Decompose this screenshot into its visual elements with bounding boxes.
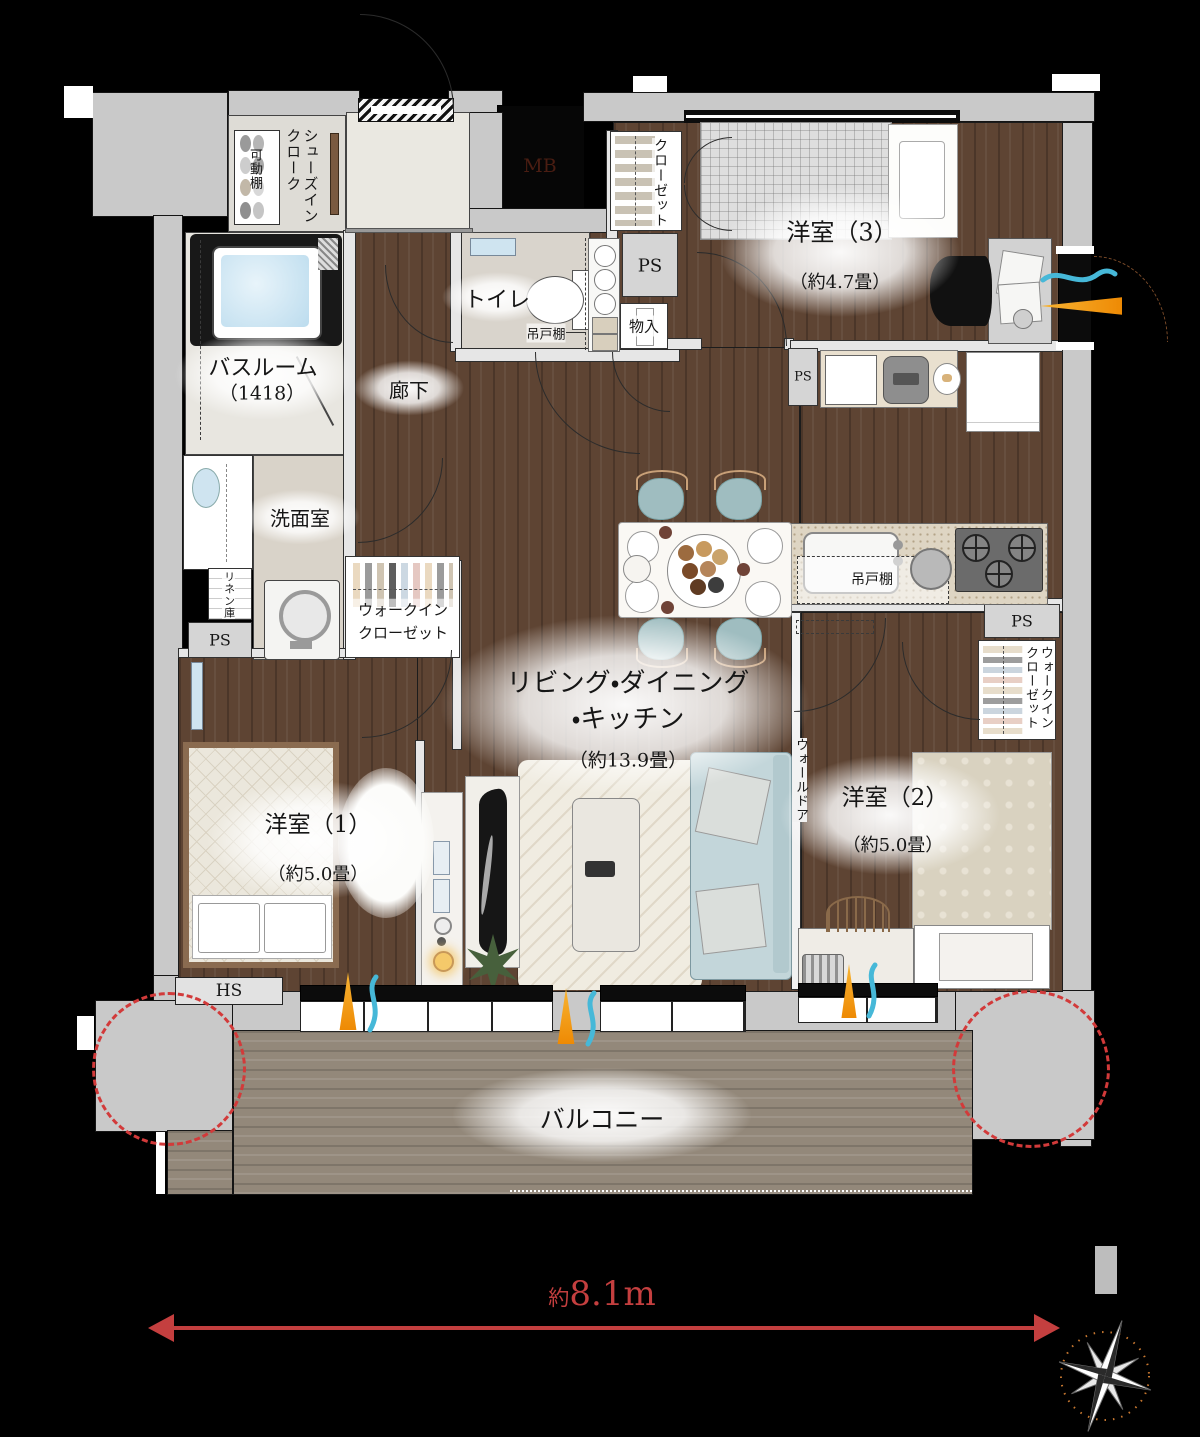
wic-left-label: ウォークインクローゼット	[353, 599, 453, 646]
cup	[661, 601, 674, 614]
wave-icon	[580, 990, 604, 1048]
plate	[625, 579, 659, 613]
gas-stove	[955, 528, 1043, 592]
toilet-cupboard-label: 吊戸棚	[526, 324, 565, 343]
tv-screen	[479, 788, 507, 955]
ldk-size-label: （約13.9畳）	[569, 746, 687, 773]
cooking-pot	[910, 548, 952, 590]
mb-label: MB	[523, 155, 556, 177]
dimension-arrow	[170, 1326, 1038, 1330]
genkan-floor	[346, 112, 470, 232]
burner	[962, 534, 990, 562]
room1-window	[191, 662, 203, 730]
section-tab	[1095, 1246, 1117, 1294]
closet-box	[610, 131, 682, 231]
linen-label: リネン庫	[222, 571, 235, 619]
room1-pillow	[198, 903, 260, 953]
wall-right	[1060, 250, 1092, 1035]
toilet-side-niche	[588, 238, 620, 352]
paper-roll	[594, 269, 616, 291]
ldk-label-line2: ・キッチン	[572, 699, 685, 736]
coffee-table	[572, 798, 640, 952]
cup	[737, 563, 750, 576]
room2-size-label: （約5.0畳）	[843, 831, 944, 857]
balcony-window-2	[600, 985, 746, 1001]
refrigerator	[966, 352, 1040, 432]
pillar-dashed-circle	[952, 990, 1110, 1148]
plate	[745, 581, 781, 617]
balcony-window-1	[300, 985, 553, 1001]
teapot	[623, 555, 651, 583]
genkan-step-line	[345, 228, 473, 233]
section-tab	[633, 76, 667, 92]
dining-table	[618, 522, 792, 618]
rice-cooker	[883, 356, 929, 404]
room2-pillow	[939, 933, 1033, 981]
washroom-label: 洗面室	[270, 503, 330, 532]
kitchen-cupboard-label: 吊戸棚	[851, 569, 893, 589]
appliance-counter	[820, 350, 958, 408]
room2-label: 洋室（2）	[842, 778, 949, 812]
toilet-cupboard-dashed	[585, 238, 586, 350]
paper-roll	[594, 293, 616, 315]
bathroom-dashed-line	[200, 240, 201, 440]
balcony-label: バルコニー	[540, 1100, 665, 1136]
floor-plan: 可動棚 シューズインクローク バスルーム （1418） リネン庫 PS 洗面室 …	[0, 0, 1200, 1437]
shoe-pair	[253, 202, 264, 219]
wall-door-label: ウォールドア	[792, 738, 807, 822]
room1-pillow	[264, 903, 326, 953]
washing-machine	[264, 580, 340, 660]
room3-label: 洋室（3）	[786, 213, 897, 248]
cup	[659, 526, 672, 539]
section-tab	[64, 86, 93, 118]
room1-label: 洋室（1）	[265, 805, 372, 839]
dimension-arrowhead-left	[148, 1314, 174, 1342]
kettle	[933, 363, 961, 395]
bathtub-inner	[212, 246, 322, 340]
movable-shelf-label: 可動棚	[246, 148, 261, 190]
shoes-cloak-partition	[330, 133, 339, 215]
wic-right-label: ウォークインクローゼット	[1022, 646, 1052, 734]
tv-remote	[585, 861, 615, 877]
room1-size-label: （約5.0畳）	[268, 860, 369, 886]
closet-label: クローゼット	[652, 138, 668, 230]
center-plate	[667, 534, 741, 608]
ldk-label-line1: リビング・ダイニング	[507, 663, 750, 700]
ps-label-kitchen: PS	[794, 370, 812, 385]
section-tab	[1052, 74, 1100, 91]
burner	[1008, 534, 1036, 562]
entrance-door-arc	[360, 14, 454, 110]
bathroom-size-label: （1418）	[219, 379, 305, 406]
ps-label-wic: PS	[1011, 612, 1033, 631]
hallway-label: 廊下	[389, 375, 429, 404]
balcony-edge-dotted-line	[510, 1190, 972, 1192]
room2-bed-sheet	[914, 925, 1050, 989]
shoes-cloak-label: シューズインクローク	[284, 128, 319, 226]
desk-mouse	[1013, 309, 1033, 329]
pillar-dashed-circle	[92, 992, 246, 1146]
section-tab	[77, 1016, 94, 1050]
sofa	[690, 752, 792, 980]
compass-icon	[1045, 1316, 1165, 1436]
plate	[747, 528, 783, 564]
toilet-window	[470, 238, 516, 256]
storage-label: 物入	[629, 316, 659, 337]
bathroom-label: バスルーム	[208, 350, 317, 382]
sofa-cushion	[695, 883, 766, 954]
wall-genkan-top-left	[228, 90, 360, 118]
dimension-label: 約8.1m	[548, 1274, 655, 1314]
microwave	[825, 355, 877, 405]
dining-chair	[634, 470, 686, 520]
shoe-pair	[240, 202, 251, 219]
hs-label: HS	[216, 981, 242, 1001]
paper-roll	[594, 245, 616, 267]
wall-top-left-block	[92, 92, 228, 217]
ps-label-hall: PS	[638, 256, 662, 277]
room2-chair	[826, 896, 890, 932]
wave-icon	[1040, 266, 1118, 290]
room3-size-label: （約4.7畳）	[790, 268, 891, 294]
toilet-label: トイレ	[464, 282, 530, 314]
sink-faucet	[893, 540, 903, 550]
bath-faucet-panel	[318, 238, 338, 270]
dining-chair	[712, 470, 764, 520]
ps-label-washroom: PS	[209, 631, 231, 650]
room3-desk	[988, 238, 1052, 344]
burner	[985, 560, 1013, 588]
wave-icon	[862, 962, 884, 1020]
wave-icon	[362, 974, 386, 1034]
